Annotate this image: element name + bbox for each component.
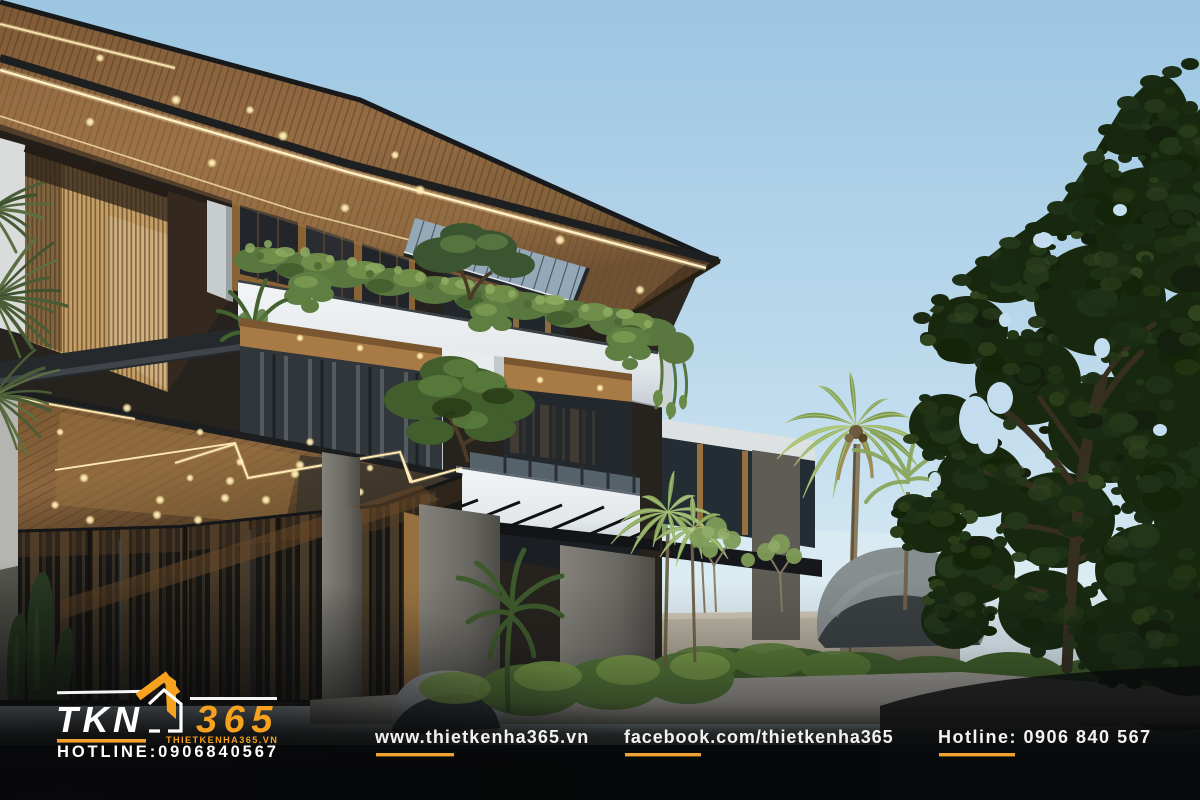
svg-text:Hotline: 0906 840 567: Hotline: 0906 840 567 (938, 727, 1152, 747)
svg-text:facebook.com/thietkenha365: facebook.com/thietkenha365 (624, 727, 894, 747)
svg-text:www.thietkenha365.vn: www.thietkenha365.vn (374, 727, 589, 747)
svg-text:HOTLINE:0906840567: HOTLINE:0906840567 (57, 743, 279, 761)
svg-text:TKN: TKN (56, 699, 144, 740)
